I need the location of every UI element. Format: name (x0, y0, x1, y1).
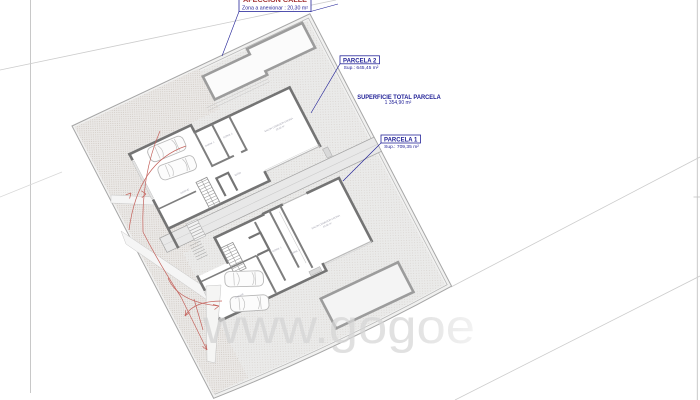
svg-text:AFECCIÓN CALLE: AFECCIÓN CALLE (243, 0, 307, 4)
svg-text:www.gogoe: www.gogoe (202, 301, 475, 354)
svg-text:Sup.: 645,45 m²: Sup.: 645,45 m² (344, 65, 379, 71)
svg-text:Sup.: 709,35 m²: Sup.: 709,35 m² (384, 144, 419, 150)
svg-text:Zona a anexionar : 20,30 m²: Zona a anexionar : 20,30 m² (242, 6, 308, 12)
svg-text:1 354,90 m²: 1 354,90 m² (385, 100, 412, 106)
svg-text:PARCELA 2: PARCELA 2 (343, 58, 377, 64)
svg-text:PARCELA 1: PARCELA 1 (384, 138, 418, 144)
